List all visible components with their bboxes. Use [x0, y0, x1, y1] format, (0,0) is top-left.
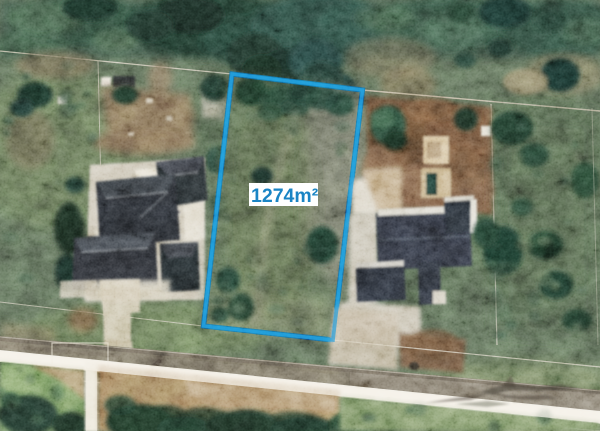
svg-text:1274m²: 1274m²: [251, 185, 319, 207]
